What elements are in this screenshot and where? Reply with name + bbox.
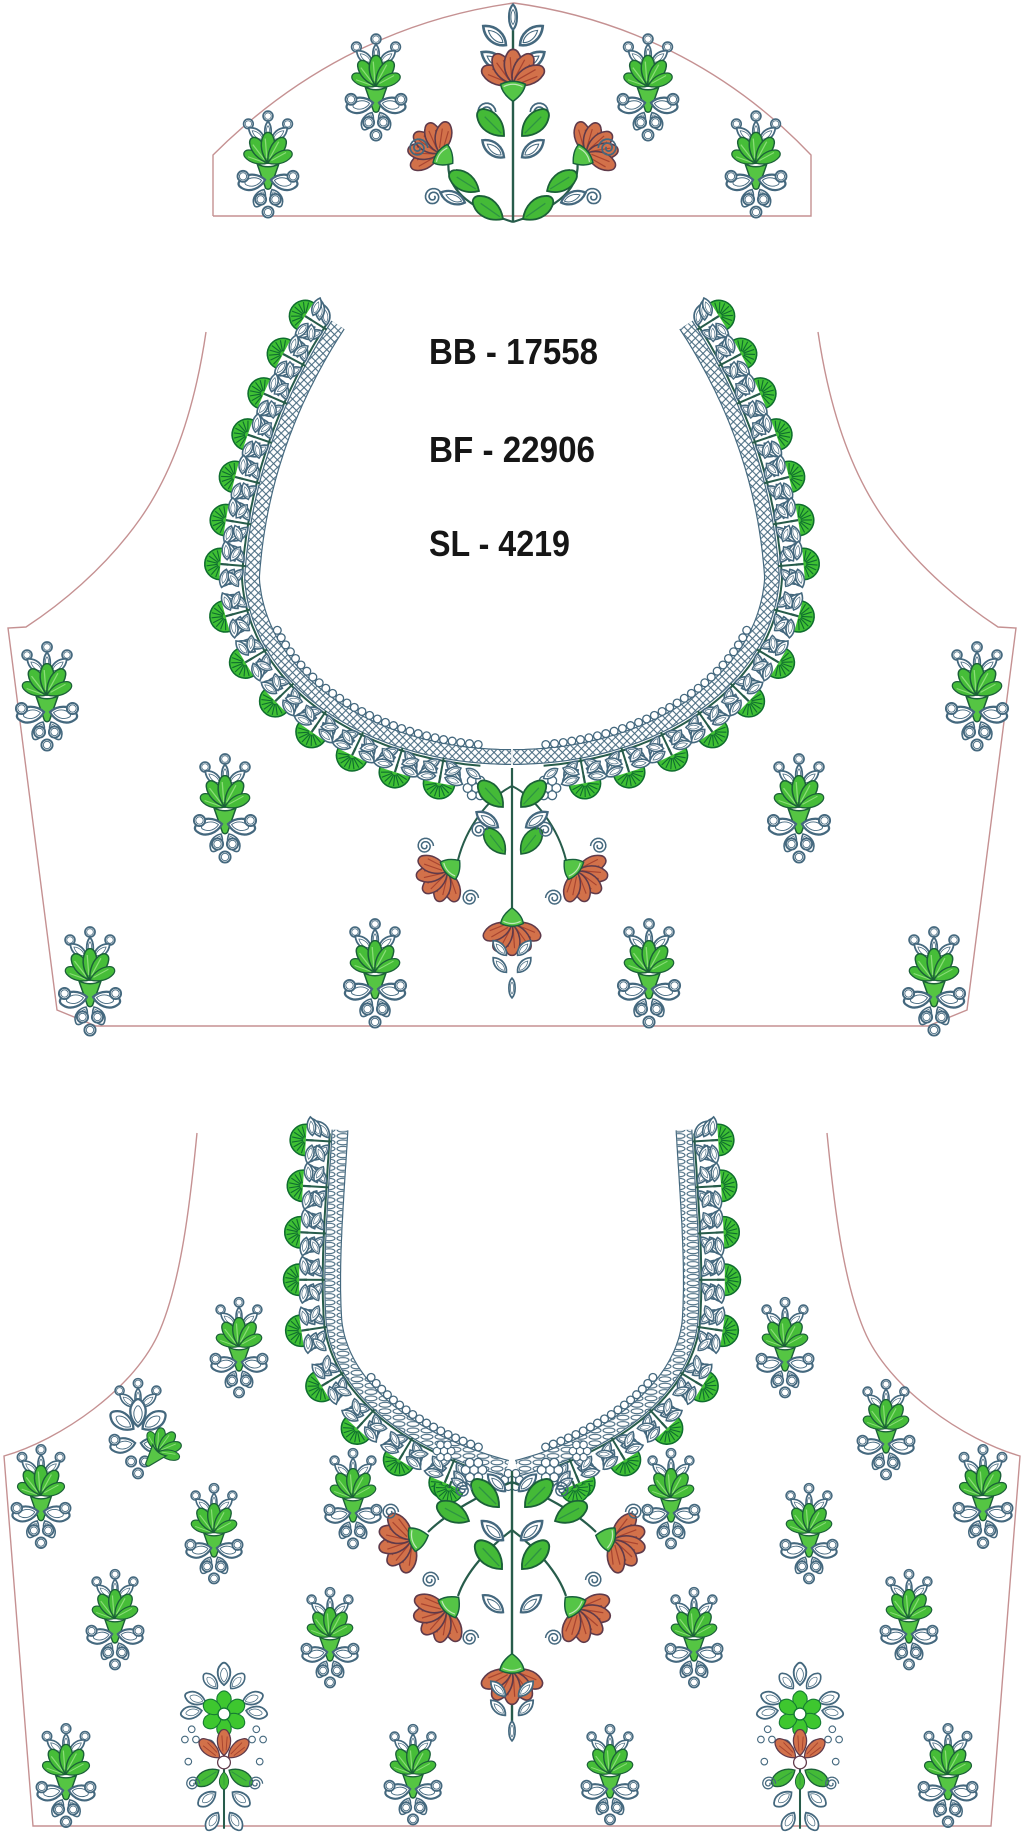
svg-text:SL - 4219: SL - 4219 bbox=[429, 523, 570, 564]
svg-text:BB - 17558: BB - 17558 bbox=[429, 331, 598, 372]
svg-text:BF - 22906: BF - 22906 bbox=[429, 429, 595, 470]
